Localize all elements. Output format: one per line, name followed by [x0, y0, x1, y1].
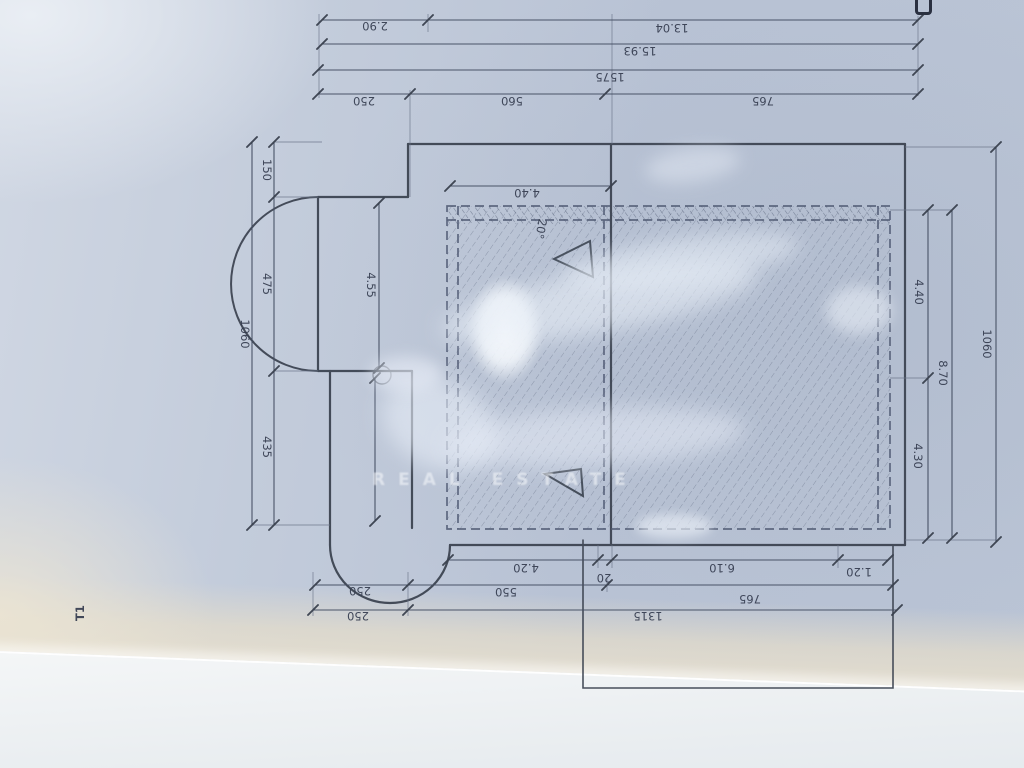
dimension-label: 560	[501, 94, 523, 108]
photographed-floor-plan: 20°	[0, 0, 1024, 768]
dimension-label: 1060	[238, 319, 252, 348]
dimension-label: 765	[752, 94, 774, 108]
cropped-letter-fragment	[915, 0, 932, 15]
dimension-label: 150	[260, 159, 274, 181]
dimension-label: 250	[347, 609, 369, 623]
dimension-label: 4.40	[912, 279, 926, 305]
dimension-label: 4.30	[911, 443, 925, 469]
dimension-label: 4.55	[364, 272, 378, 298]
dimension-label: 550	[495, 585, 517, 599]
dimension-label: 15.93	[624, 44, 657, 58]
dimension-label: 8.70	[936, 360, 950, 386]
dimension-label: 6.10	[709, 561, 735, 575]
dimension-label: 1315	[633, 609, 662, 623]
dimension-label: 1060	[980, 329, 994, 358]
dimension-label: 4.20	[513, 561, 539, 575]
plan-title-label: T1	[73, 605, 87, 621]
column-circle	[373, 366, 391, 384]
dimension-label: 765	[739, 592, 761, 606]
dimension-label: 2.90	[362, 19, 388, 33]
roof-hatch	[447, 206, 890, 529]
dimension-label: 13.04	[656, 21, 689, 35]
dimension-label: 435	[260, 436, 274, 458]
dimension-label: 20	[597, 571, 612, 585]
dimension-label: 1.20	[846, 565, 872, 579]
dimension-label: 1575	[595, 70, 624, 84]
dimension-label: 475	[260, 273, 274, 295]
dimension-label: 250	[353, 94, 375, 108]
architectural-plan-drawing: 20°	[0, 0, 1024, 768]
annex-outline	[583, 540, 893, 688]
dimension-label: 4.40	[514, 186, 540, 200]
dimension-label: 250	[349, 584, 371, 598]
rounded-bay-arc	[330, 545, 450, 603]
